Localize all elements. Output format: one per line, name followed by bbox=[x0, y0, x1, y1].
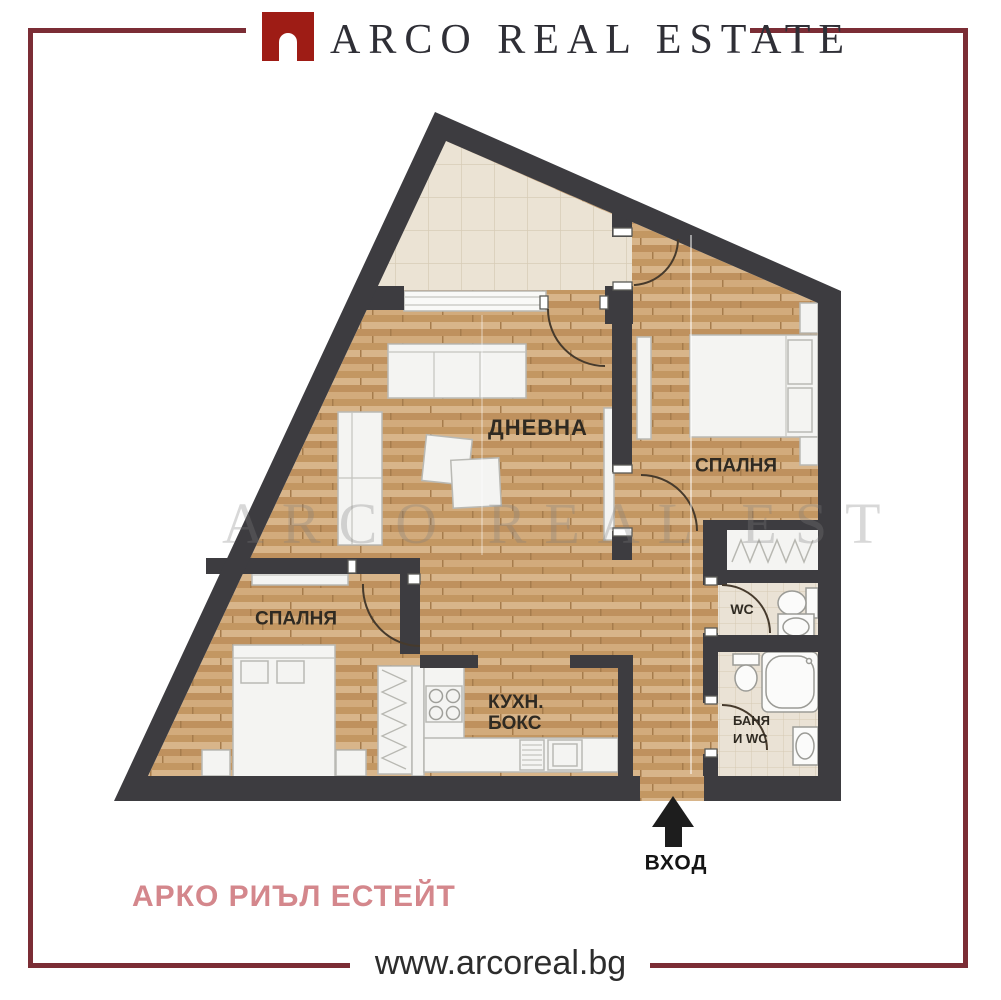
pillow bbox=[277, 661, 304, 683]
pillow bbox=[241, 661, 268, 683]
label-bath-line2: И WC bbox=[733, 730, 770, 748]
label-kitchen-line2: БОКС bbox=[488, 713, 544, 734]
label-bedroom-left: СПАЛНЯ bbox=[255, 610, 337, 629]
nightstand bbox=[800, 303, 818, 333]
label-kitchen-line1: КУХН. bbox=[488, 692, 544, 713]
wardrobe-side bbox=[412, 666, 424, 776]
label-bath-line1: БАНЯ bbox=[733, 712, 770, 730]
website-url: www.arcoreal.bg bbox=[0, 944, 1001, 983]
entrance-opening bbox=[640, 776, 704, 801]
nightstand bbox=[800, 437, 818, 465]
entrance-arrow-icon bbox=[652, 796, 694, 847]
pillow bbox=[788, 340, 812, 384]
shower-icon bbox=[762, 652, 818, 712]
page: ARCO REAL ESTATE bbox=[0, 0, 1001, 1000]
wardrobe-strip bbox=[637, 337, 651, 439]
label-kitchen: КУХН. БОКС bbox=[488, 692, 544, 734]
label-bath-wc: БАНЯ И WC bbox=[733, 712, 770, 748]
label-living-room: ДНЕВНА bbox=[488, 417, 588, 439]
nightstand bbox=[202, 750, 230, 776]
floor-plan bbox=[0, 0, 1001, 1000]
label-wc: WC bbox=[730, 602, 753, 616]
bath-toilet-icon bbox=[733, 654, 759, 691]
terrace-window bbox=[404, 291, 546, 311]
label-entrance: ВХОД bbox=[645, 853, 708, 874]
brand-name-bulgarian: АРКО РИЪЛ ЕСТЕЙТ bbox=[132, 880, 456, 914]
pillow bbox=[788, 388, 812, 432]
label-bedroom-right: СПАЛНЯ bbox=[695, 457, 777, 476]
nightstand bbox=[336, 750, 366, 776]
bath-sink-icon bbox=[793, 727, 818, 765]
